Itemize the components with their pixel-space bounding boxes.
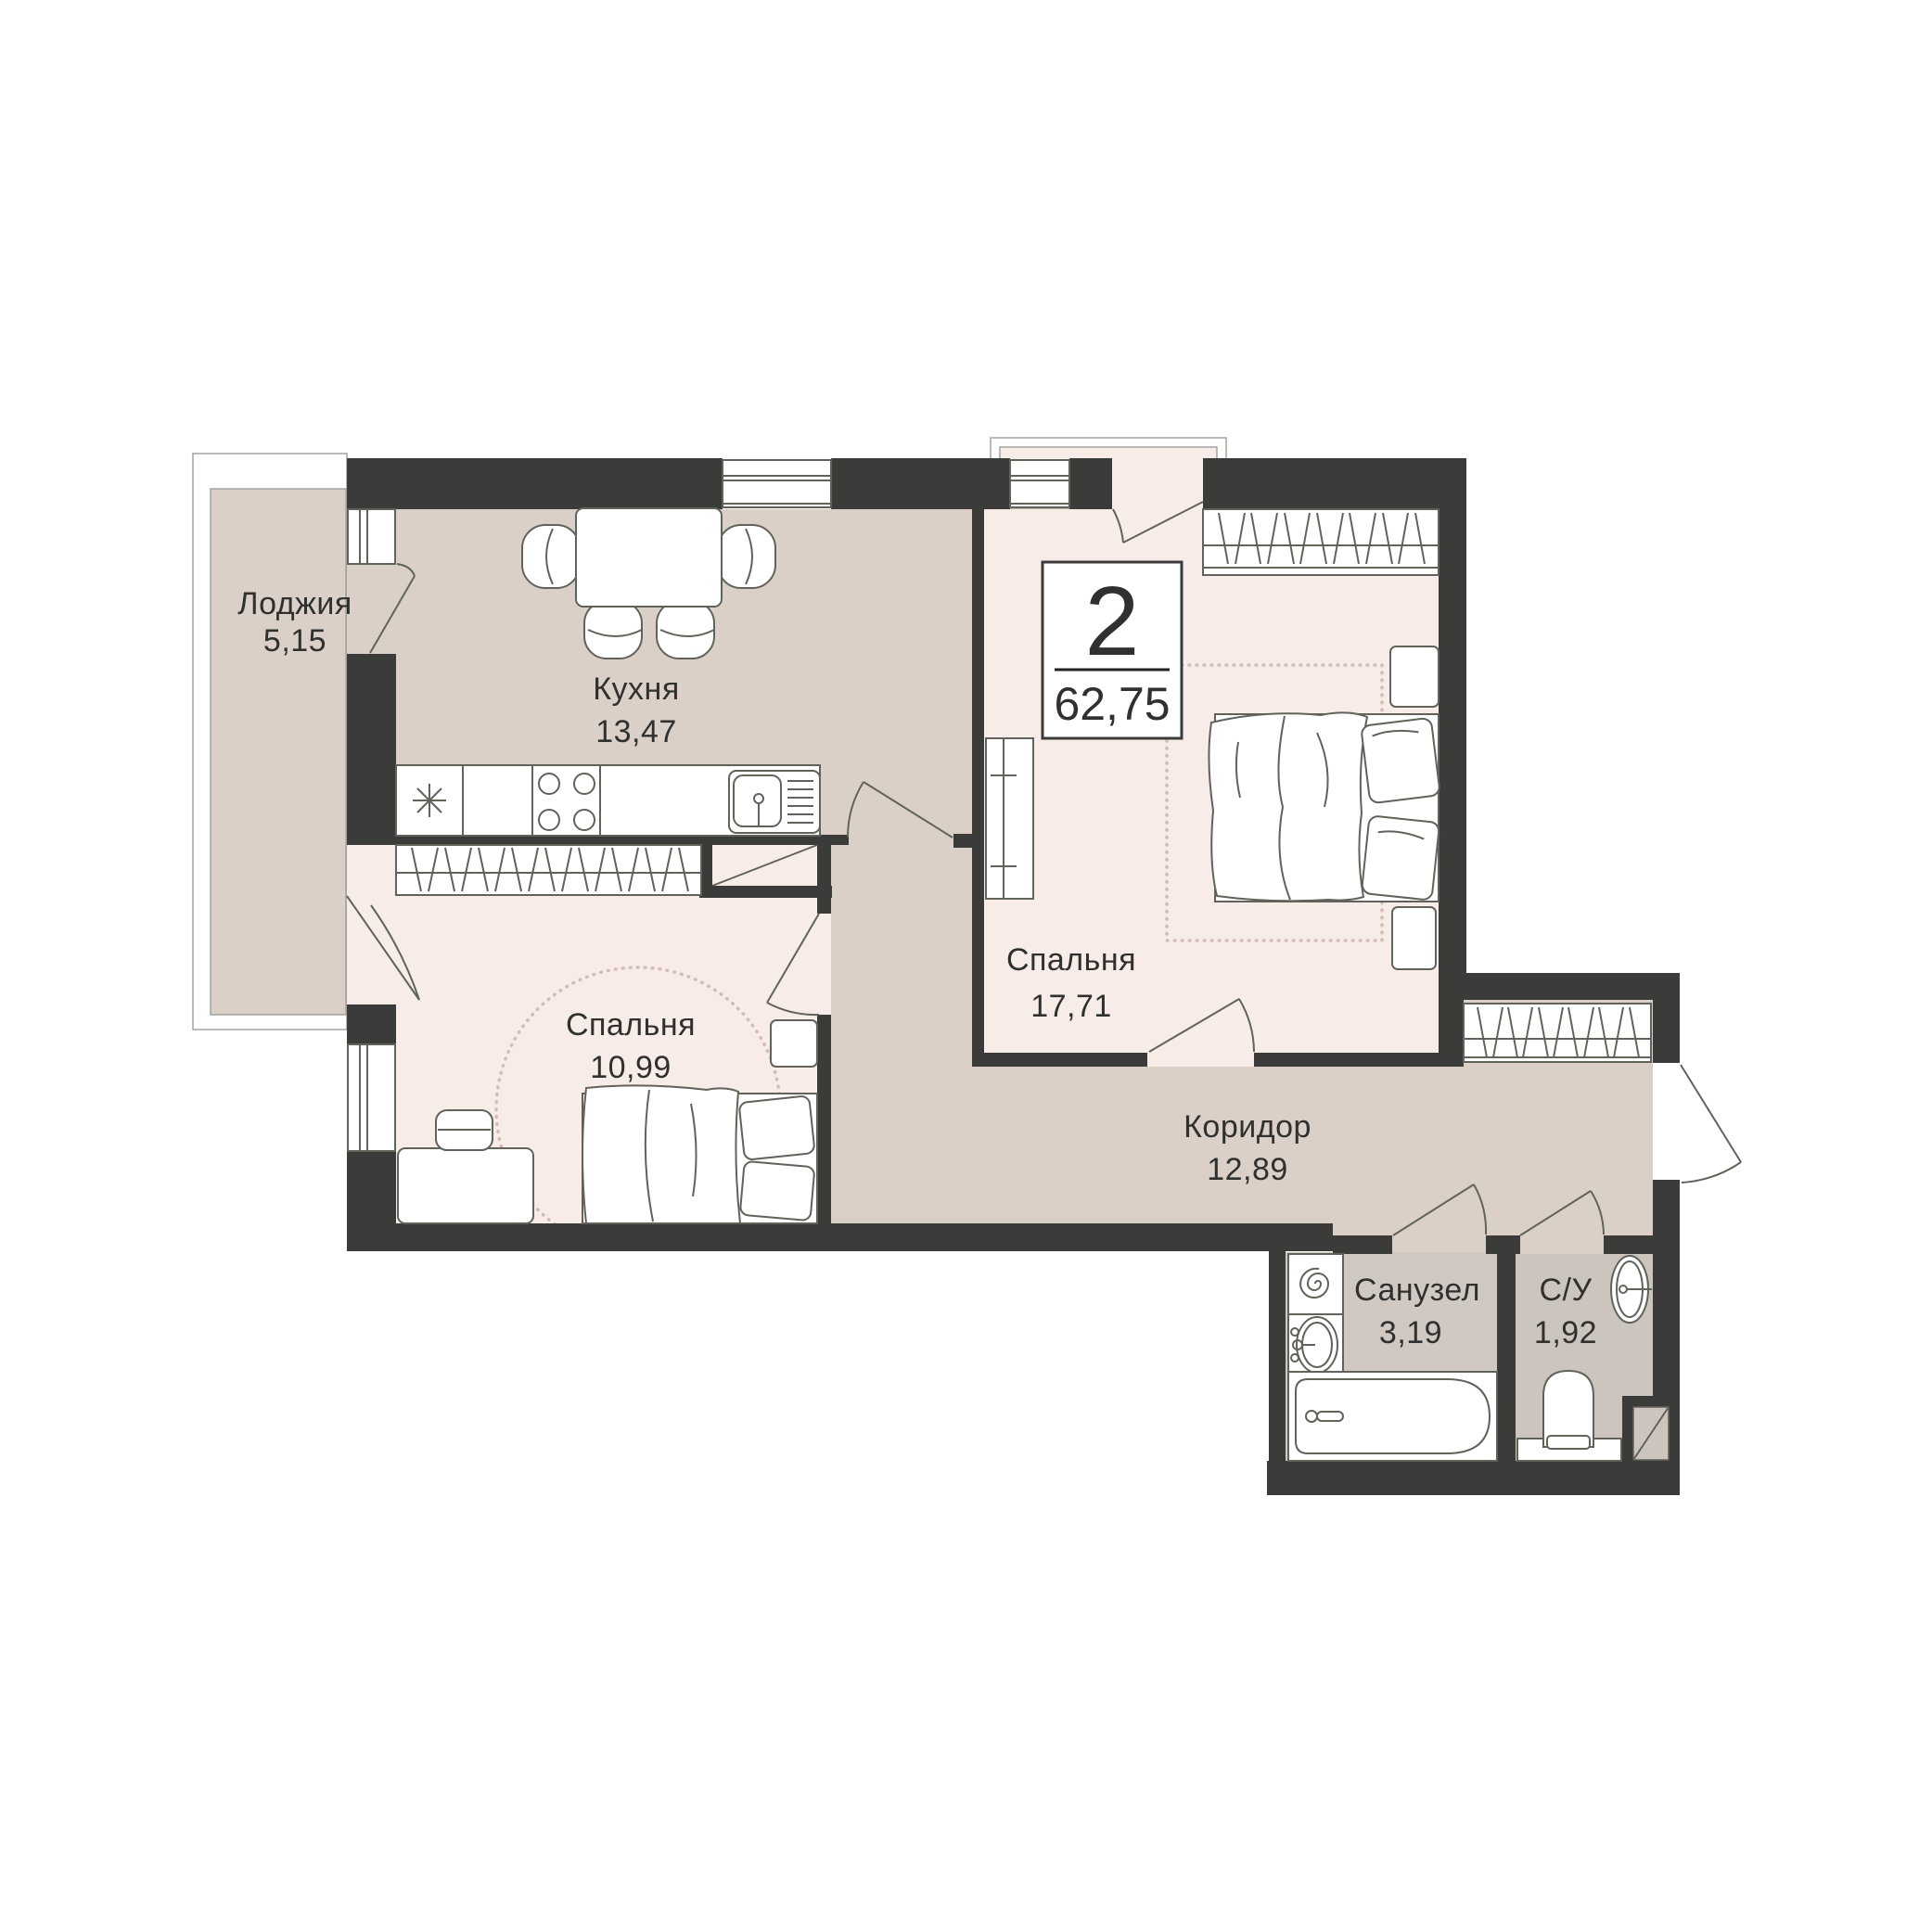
svg-text:12,89: 12,89	[1207, 1152, 1288, 1187]
svg-text:С/У: С/У	[1539, 1273, 1592, 1308]
svg-text:Лоджия: Лоджия	[237, 586, 352, 621]
svg-text:10,99: 10,99	[590, 1050, 672, 1085]
svg-text:3,19: 3,19	[1379, 1315, 1442, 1350]
svg-text:Кухня: Кухня	[593, 672, 680, 707]
svg-text:2: 2	[1085, 567, 1140, 676]
svg-text:5,15: 5,15	[263, 623, 326, 659]
svg-text:1,92: 1,92	[1534, 1315, 1597, 1350]
svg-text:Санузел: Санузел	[1354, 1273, 1480, 1308]
svg-text:13,47: 13,47	[595, 714, 677, 749]
svg-text:62,75: 62,75	[1054, 678, 1170, 730]
svg-text:17,71: 17,71	[1030, 989, 1112, 1024]
svg-text:Коридор: Коридор	[1184, 1109, 1311, 1145]
svg-text:Спальня: Спальня	[1006, 942, 1136, 978]
svg-text:Спальня: Спальня	[566, 1007, 696, 1043]
